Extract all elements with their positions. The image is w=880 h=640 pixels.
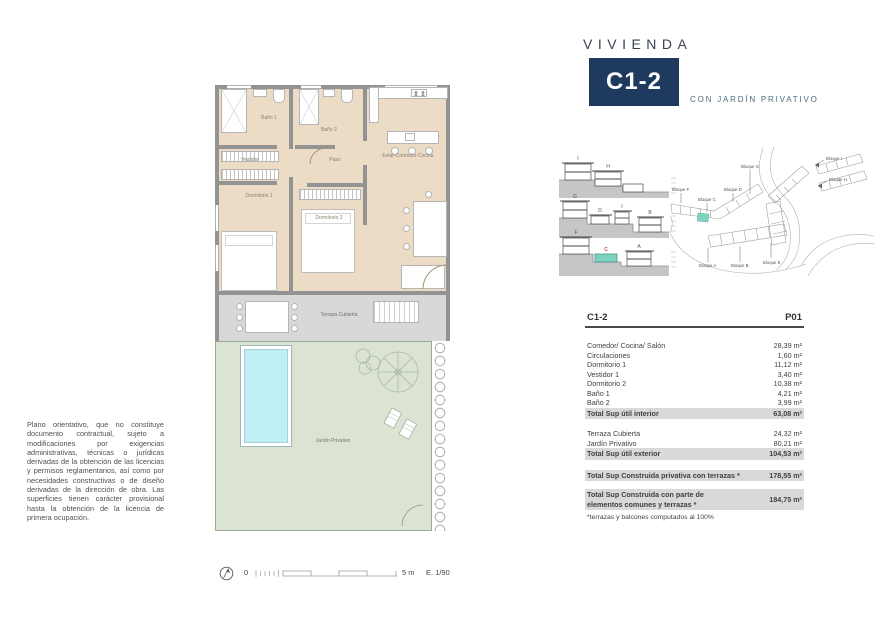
- room-label-bano2: Baño 2: [309, 127, 349, 133]
- chair: [291, 303, 298, 310]
- toilet-fixture: [341, 89, 353, 103]
- wall: [363, 85, 367, 141]
- toilet-fixture: [273, 89, 285, 103]
- garden: Jardín Privativo: [215, 341, 432, 531]
- section-diagrams: I H G D I B F C A: [557, 150, 682, 282]
- table-header-unit: C1-2: [587, 312, 608, 323]
- wardrobe: [299, 189, 361, 200]
- table-row: Dormitorio 210,38 m²: [585, 379, 804, 389]
- terrace: Terraza Cubierta: [215, 295, 450, 341]
- door-arc: [309, 147, 327, 165]
- terrace-table: [245, 301, 289, 333]
- bloque-label: Bloque H: [829, 177, 847, 182]
- gate-arc: [402, 505, 423, 526]
- scale-zero-label: 0: [244, 568, 248, 577]
- title-subtitle: CON JARDÍN PRIVATIVO: [690, 95, 819, 104]
- room-label-bano1: Baño 1: [249, 115, 289, 121]
- scale-steps: [282, 566, 398, 579]
- brochure-page: VIVIENDA C1-2 CON JARDÍN PRIVATIVO Plano…: [0, 0, 880, 640]
- section-letter-highlight: C: [604, 247, 608, 253]
- wall: [219, 145, 277, 149]
- door-arc: [421, 261, 447, 289]
- sink-fixture: [405, 133, 415, 141]
- kitchen-counter: [369, 87, 448, 99]
- scale-length-label: 5 m: [402, 568, 415, 577]
- window: [215, 245, 219, 271]
- table-row: Baño 23,99 m²: [585, 398, 804, 408]
- chair: [425, 191, 432, 198]
- table-header-floor: P01: [785, 312, 802, 323]
- table-row: Dormitorio 111,12 m²: [585, 360, 804, 370]
- bloque-label: Bloque F: [672, 187, 690, 192]
- sink-fixture: [253, 89, 267, 97]
- table-rows: Comedor/ Cocina/ Salón28,39 m² Circulaci…: [585, 341, 804, 510]
- room-label-vestidor: Vestidor: [230, 157, 270, 163]
- wall: [289, 85, 293, 149]
- chair: [403, 243, 410, 250]
- wall: [307, 183, 363, 187]
- kitchen-counter: [369, 87, 379, 123]
- wardrobe: [221, 169, 279, 180]
- section-letter: H: [606, 164, 610, 170]
- room-label-estar: Estar-Comedor-Cocina: [373, 153, 443, 159]
- table-row-total-construida: Total Sup Construida privativa con terra…: [585, 470, 804, 482]
- table-row: Vestidor 13,40 m²: [585, 370, 804, 380]
- table-footnote: *terrazas y balcones computados al 100%: [585, 514, 804, 521]
- sink-fixture: [323, 89, 335, 97]
- bloque-label: Bloque D: [724, 187, 742, 192]
- table-row: Baño 14,21 m²: [585, 389, 804, 399]
- hedge-strip: [432, 341, 448, 531]
- unit-badge: C1-2: [589, 58, 679, 106]
- site-plan: Bloque F Bloque C Bloque G Bloque D Bloq…: [668, 146, 876, 294]
- bloque-label: Bloque I: [826, 156, 842, 161]
- section-letter: I: [577, 156, 578, 162]
- room-label-dormitorio1: Dormitorio 1: [229, 193, 289, 199]
- chair: [236, 314, 243, 321]
- garden-trees: [216, 342, 431, 530]
- bloque-label: Bloque G: [741, 164, 760, 169]
- table-row: Jardín Privativo80,21 m²: [585, 439, 804, 449]
- highlighted-unit-section: [595, 254, 617, 262]
- areas-table: C1-2 P01 Comedor/ Cocina/ Salón28,39 m² …: [585, 312, 804, 521]
- section-letter: A: [637, 244, 641, 250]
- shower-fixture: [299, 89, 319, 125]
- section-letter: F: [574, 230, 577, 236]
- section-letter: B: [648, 210, 652, 216]
- disclaimer-text: Plano orientativo, que no constituye doc…: [27, 420, 164, 522]
- table-row: Circulaciones1,60 m²: [585, 351, 804, 361]
- window: [215, 205, 219, 231]
- wall: [363, 165, 367, 225]
- bed: [221, 231, 277, 291]
- highlighted-unit-site: [697, 213, 709, 222]
- unit-badge-label: C1-2: [606, 68, 662, 96]
- bloque-label: Bloque B: [731, 263, 749, 268]
- table-row-total-exterior: Total Sup útil exterior104,53 m²: [585, 448, 804, 460]
- floor-plan: Baño 1 Baño 2 Paso Vestidor Dormitorio 1…: [215, 85, 450, 533]
- table-row: Terraza Cubierta24,32 m²: [585, 429, 804, 439]
- chair: [291, 325, 298, 332]
- shower-fixture: [221, 89, 247, 133]
- bloque-label: Bloque E: [763, 260, 781, 265]
- north-arrow-icon: [219, 565, 235, 582]
- chair: [291, 314, 298, 321]
- scale-subdivisions: [254, 569, 280, 578]
- chair: [403, 207, 410, 214]
- section-letter: D: [598, 208, 602, 214]
- chair: [236, 303, 243, 310]
- table-header: C1-2 P01: [585, 312, 804, 328]
- dining-table: [413, 201, 447, 257]
- room-label-dormitorio2: Dormitorio 2: [299, 215, 359, 221]
- scale-ratio-label: E. 1/90: [426, 568, 450, 577]
- bloque-label: Bloque A: [699, 263, 716, 268]
- table-row-total-interior: Total Sup útil interior63,08 m²: [585, 408, 804, 420]
- table-row: Comedor/ Cocina/ Salón28,39 m²: [585, 341, 804, 351]
- wall: [289, 177, 293, 295]
- wall: [219, 181, 277, 185]
- table-row-total-comunes: Total Sup Construida con parte de elemen…: [585, 489, 804, 510]
- room-label-jardin: Jardín Privativo: [298, 438, 368, 444]
- bloque-label: Bloque C: [698, 197, 716, 202]
- section-letter: G: [573, 194, 577, 200]
- section-letter: I: [621, 204, 622, 210]
- chair: [403, 225, 410, 232]
- hob-fixture: [411, 89, 427, 97]
- title-brand: VIVIENDA: [583, 36, 692, 52]
- sun-lounger: [373, 301, 419, 323]
- room-label-terraza: Terraza Cubierta: [309, 312, 369, 318]
- chair: [236, 325, 243, 332]
